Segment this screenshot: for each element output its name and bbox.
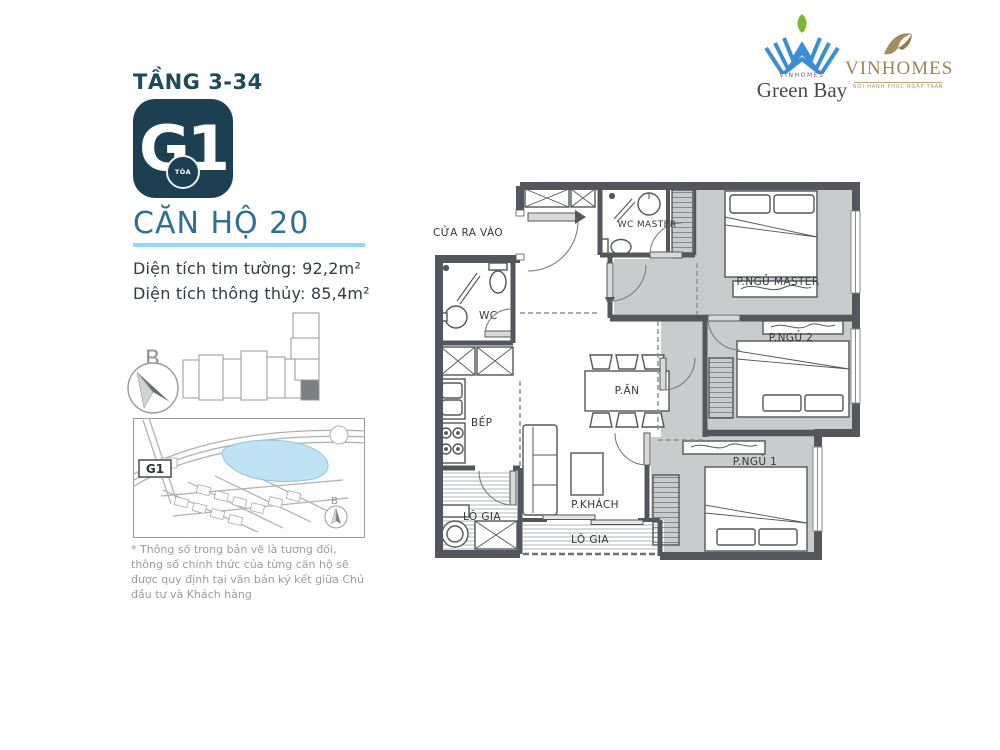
sofa: [523, 425, 557, 515]
highlighted-unit: [301, 380, 319, 400]
bedroom2-door-leaf: [708, 315, 740, 321]
wash-basin: [445, 306, 467, 328]
chair: [616, 355, 638, 369]
label-wc-master: WC MASTER: [618, 220, 677, 230]
title-underline: [133, 243, 365, 247]
map-roundabout: [330, 426, 348, 444]
wardrobe-bed1: [653, 475, 679, 545]
wc-door-leaf: [485, 331, 511, 337]
area-gross: Diện tích tim tường: 92,2m²: [133, 256, 370, 281]
master-door-leaf: [607, 263, 613, 301]
label-kitchen: BẾP: [471, 415, 492, 429]
vinhomes-bird-icon: [878, 28, 918, 58]
footnote: * Thông số trong bản vẽ là tương đối, th…: [131, 543, 371, 602]
shower-head: [444, 266, 449, 271]
label-bedroom-2: P.NGỦ 2: [769, 330, 814, 344]
corridor-door-leaf: [660, 358, 666, 390]
label-wc: WC: [479, 310, 498, 322]
chair: [642, 413, 664, 427]
toilet-tank: [489, 263, 507, 270]
north-compass: B: [128, 347, 178, 413]
wardrobe-bed2: [709, 358, 733, 418]
label-entrance: CỬA RA VÀO: [433, 225, 503, 239]
site-map: G1 B: [133, 418, 365, 538]
vinhomes-tagline: NƠI HẠNH PHÚC NGẬP TRÀN: [845, 84, 951, 90]
coffee-table: [571, 453, 603, 495]
map-unit-label: G1: [146, 462, 164, 476]
vinhomes-name-text: VINHOMES: [845, 58, 951, 80]
tower-label: TÒA: [166, 155, 200, 189]
building-badge: G1 TÒA: [133, 99, 233, 198]
bedroom1-door-leaf: [644, 433, 650, 465]
loggia-door-leaf: [510, 471, 516, 505]
floorplan-sheet: TẦNG 3-34 G1 TÒA CĂN HỘ 20 Diện tích tim…: [0, 0, 1000, 750]
map-unit-marker: G1: [139, 460, 171, 477]
floor-plan: CỬA RA VÀO WC WC MASTER P.NGỦ MASTER P.N…: [425, 175, 885, 595]
chair: [590, 413, 612, 427]
floor-range-label: TẦNG 3-34: [133, 70, 263, 94]
greenbay-logo: VINHOMES Green Bay: [750, 12, 854, 100]
vinhomes-logo: VINHOMES NƠI HẠNH PHÚC NGẬP TRÀN: [845, 28, 951, 90]
vinhomes-rule: [854, 82, 942, 83]
area-net: Diện tích thông thủy: 85,4m²: [133, 281, 370, 306]
label-dining: P.ĂN: [615, 384, 640, 397]
label-bedroom-1: P.NGỦ 1: [733, 454, 778, 468]
entrance-arrow: [575, 210, 586, 224]
chair: [590, 355, 612, 369]
label-living: P.KHÁCH: [571, 498, 619, 511]
floorplate-outline: [183, 313, 319, 400]
chair: [616, 413, 638, 427]
label-bedroom-master: P.NGỦ MASTER: [736, 274, 819, 288]
label-loggia-large: LÔ GIA: [571, 533, 609, 546]
wcmaster-door-leaf: [650, 252, 682, 258]
entrance-door-leaf: [528, 213, 578, 221]
area-info: Diện tích tim tường: 92,2m² Diện tích th…: [133, 256, 370, 306]
unit-title: CĂN HỘ 20: [133, 206, 309, 241]
greenbay-name-text: Green Bay: [750, 78, 854, 103]
greenbay-tree-icon: [750, 12, 854, 74]
shower-head: [610, 194, 615, 199]
toilet: [490, 271, 506, 293]
map-compass-letter: B: [331, 496, 338, 507]
floorplate-locator: B: [125, 308, 370, 416]
toilet: [611, 240, 631, 255]
label-loggia-small: LÔ GIA: [463, 510, 501, 523]
